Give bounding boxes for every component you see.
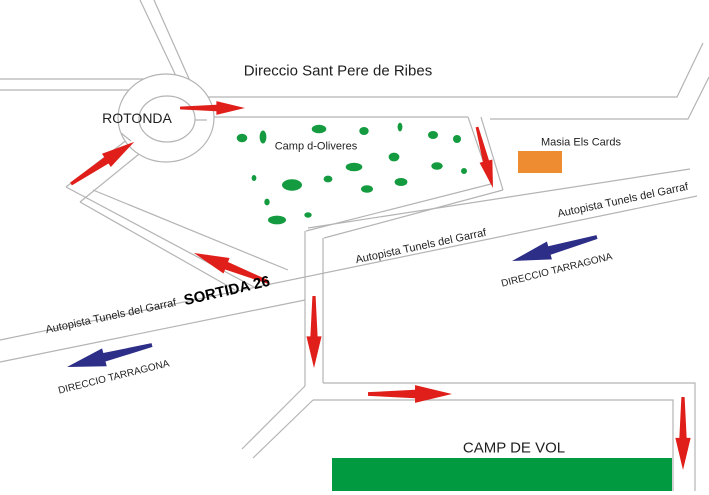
road-exit-ramp	[66, 187, 254, 290]
route-arrow-vertical-down	[306, 296, 321, 368]
camp-de-vol-field	[332, 458, 672, 491]
route-arrow-side-road-down	[471, 125, 500, 189]
olive-tree	[346, 163, 363, 172]
olive-tree	[428, 131, 438, 139]
label-masia: Masia Els Cards	[541, 138, 621, 149]
road-north	[140, 0, 190, 81]
olive-tree	[252, 175, 257, 181]
olive-tree	[361, 185, 373, 193]
label-direction-ribes: Direccio Sant Pere de Ribes	[244, 64, 432, 79]
olive-tree	[264, 199, 269, 206]
route-arrow-to-camp	[675, 397, 690, 470]
label-olive-field: Camp d-Oliveres	[275, 142, 358, 153]
olive-tree	[398, 123, 403, 132]
olive-tree	[282, 179, 302, 190]
olive-tree	[453, 135, 461, 143]
olive-tree	[461, 168, 467, 174]
olive-tree	[304, 212, 311, 217]
road-ribes	[206, 43, 709, 119]
olive-tree	[237, 134, 248, 143]
field-boundary	[93, 190, 288, 270]
olive-tree	[431, 162, 442, 169]
olive-tree	[389, 153, 400, 162]
olive-tree	[268, 216, 286, 225]
olive-tree	[260, 131, 267, 144]
olive-tree	[312, 125, 327, 134]
label-camp-de-vol: CAMP DE VOL	[463, 441, 565, 456]
olive-tree	[359, 127, 368, 135]
olive-tree	[395, 178, 408, 186]
olive-tree	[324, 176, 333, 183]
label-rotonda: ROTONDA	[102, 111, 172, 125]
route-map: Direccio Sant Pere de Ribes ROTONDA Camp…	[0, 0, 709, 495]
road-west	[0, 79, 144, 90]
masia-building	[518, 151, 562, 173]
road-stub	[242, 386, 313, 458]
